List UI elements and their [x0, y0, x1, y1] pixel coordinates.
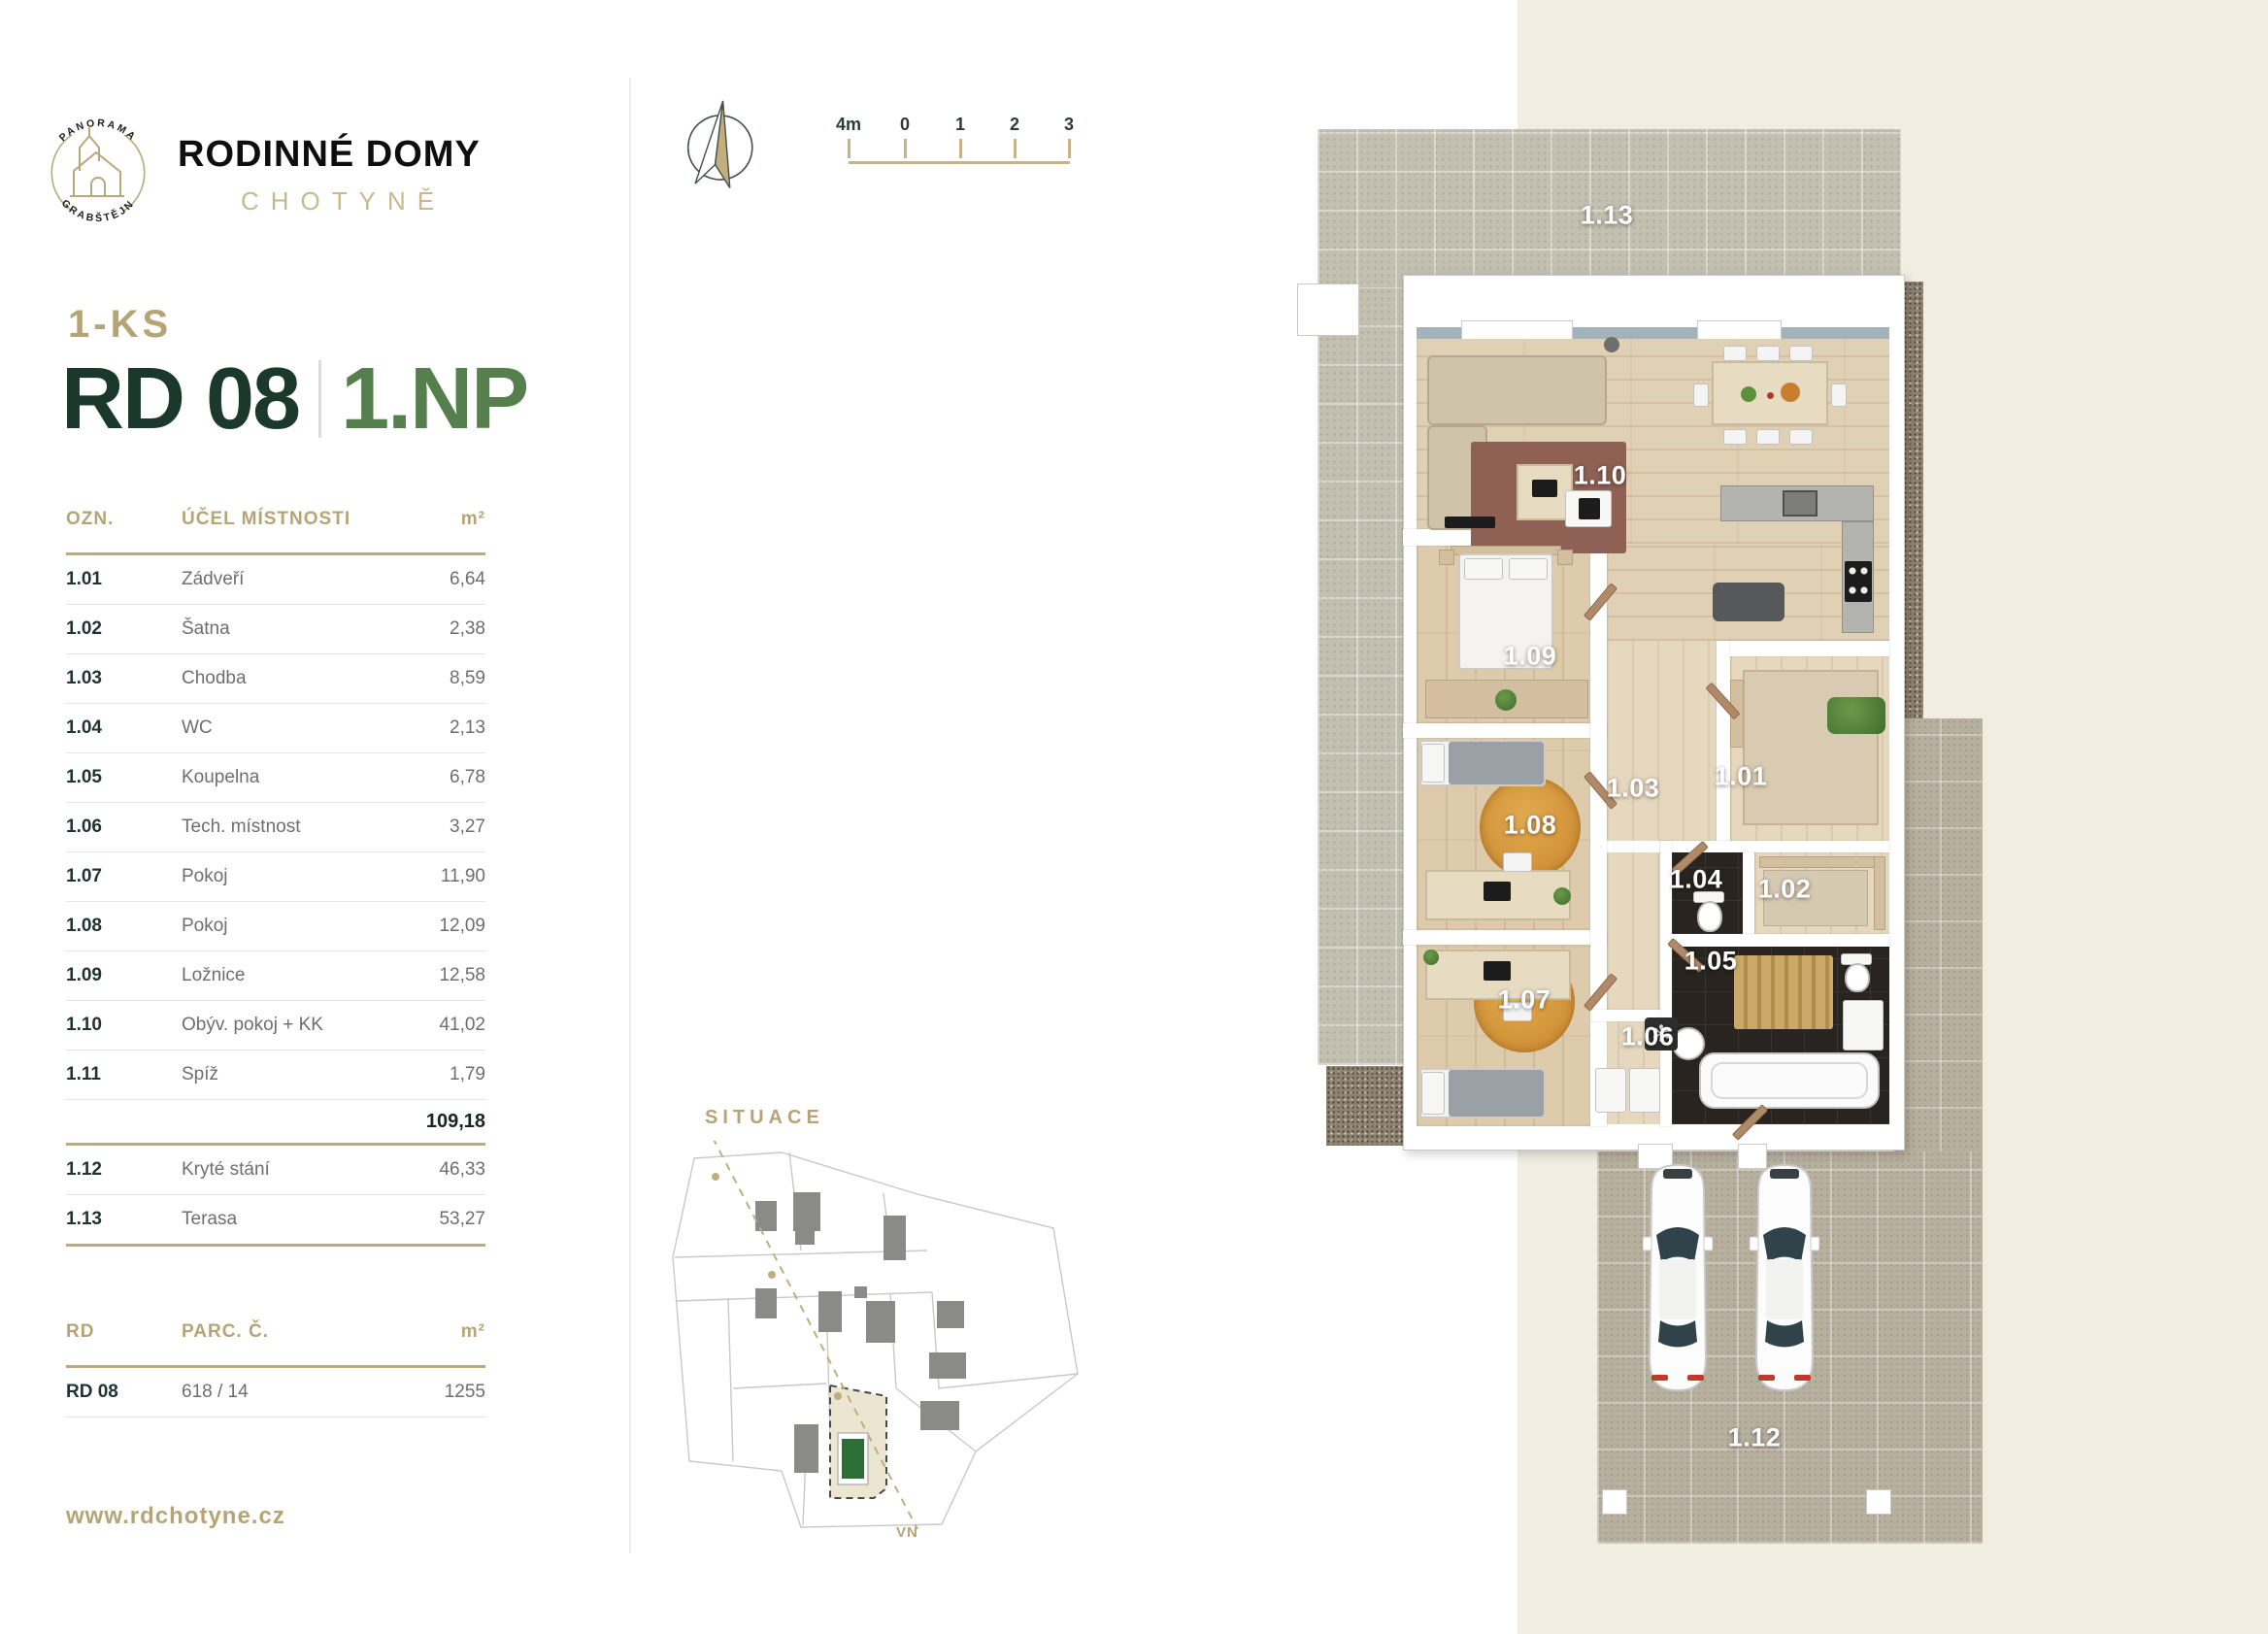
table-row: 1.09Ložnice12,58	[66, 950, 485, 1000]
table-row: 1.12Kryté stání46,33	[66, 1146, 485, 1194]
header-area: m²	[398, 509, 485, 530]
highlighted-house	[842, 1439, 864, 1479]
divider-gold	[66, 1244, 485, 1247]
scale-tick: 2	[995, 115, 1034, 158]
dining-chair	[1756, 429, 1780, 445]
table-total-row: 109,18	[66, 1099, 485, 1143]
nightstand	[1557, 550, 1573, 565]
table-row: 1.10Obýv. pokoj + KK41,02	[66, 1000, 485, 1050]
table-row: 1.02Šatna2,38	[66, 604, 485, 653]
wardrobe-unit	[1874, 856, 1885, 930]
pillow	[1509, 558, 1548, 580]
rooms-table-body: 1.01Zádveří6,64 1.02Šatna2,38 1.03Chodba…	[66, 555, 485, 1099]
table-row: 1.07Pokoj11,90	[66, 851, 485, 901]
scale-tick: 3	[1050, 115, 1088, 158]
situace-title: SITUACE	[705, 1107, 824, 1129]
table-row: 1.06Tech. místnost3,27	[66, 802, 485, 851]
table-row: RD 08618 / 141255	[66, 1368, 485, 1417]
website-link[interactable]: www.rdchotyne.cz	[66, 1503, 285, 1530]
wall	[1403, 723, 1607, 738]
room-label: 1.02	[1758, 875, 1812, 905]
entry-rug	[1743, 670, 1879, 825]
tomato	[1767, 392, 1774, 399]
wall	[1672, 934, 1889, 947]
stove	[1845, 561, 1872, 602]
rooms-table-header: OZN. ÚČEL MÍSTNOSTI m²	[66, 500, 485, 539]
unit-floor-label: 1.NP	[341, 355, 527, 443]
kitchen-sink	[1783, 490, 1818, 517]
toilet-bowl	[1845, 963, 1870, 992]
header-purpose: ÚČEL MÍSTNOSTI	[182, 509, 398, 530]
site-map: VN	[636, 1141, 1112, 1597]
compass-icon	[684, 97, 757, 194]
salad-bowl	[1741, 386, 1756, 402]
scale-tick: 1	[941, 115, 980, 158]
washing-machine	[1595, 1068, 1626, 1113]
table-row: 1.04WC2,13	[66, 703, 485, 752]
table-row: 1.08Pokoj12,09	[66, 901, 485, 950]
bathtub	[1699, 1052, 1880, 1109]
room-hall-upper	[1607, 641, 1717, 841]
table-row: 1.13Terasa53,27	[66, 1194, 485, 1244]
room-label: 1.05	[1684, 947, 1738, 977]
wall	[1743, 852, 1754, 934]
car	[1643, 1161, 1713, 1396]
dryer	[1629, 1068, 1660, 1113]
scale-ticks: 0 1 2 3 4m	[849, 115, 1070, 165]
parcel-table: RD PARC. Č. m² RD 08618 / 141255	[66, 1313, 485, 1417]
scale-tick: 0	[885, 115, 924, 158]
table-row: 1.05Koupelna6,78	[66, 752, 485, 802]
kitchen-island	[1713, 583, 1784, 621]
unit-divider	[318, 360, 321, 438]
room-label: 1.01	[1715, 762, 1768, 792]
sofa	[1427, 355, 1607, 425]
wall	[1717, 641, 1730, 841]
laptop	[1484, 882, 1511, 901]
rooms-table: OZN. ÚČEL MÍSTNOSTI m² 1.01Zádveří6,64 1…	[66, 500, 485, 1247]
room-label: 1.09	[1504, 642, 1557, 672]
carport-post	[1866, 1489, 1891, 1515]
plant	[1553, 887, 1571, 905]
floorplan-sheet: ✻ 1.131.101.091.031.011.081.041.021.051.…	[0, 0, 2268, 1634]
dining-chair	[1789, 429, 1813, 445]
vn-line-label: VN	[896, 1524, 918, 1541]
pendant-lamp	[1604, 337, 1619, 352]
header-ozn: OZN.	[66, 509, 182, 530]
table-row: 1.03Chodba8,59	[66, 653, 485, 703]
header-area: m²	[398, 1321, 485, 1343]
rooms-table-outdoor: 1.12Kryté stání46,33 1.13Terasa53,27	[66, 1146, 485, 1244]
parcel-table-body: RD 08618 / 141255	[66, 1368, 485, 1417]
brand-badge: PANORAMA GRABŠTĚJN	[35, 97, 161, 248]
toilet-bowl	[1697, 901, 1722, 932]
room-label: 1.04	[1670, 865, 1723, 895]
table-row: 1.01Zádveří6,64	[66, 555, 485, 604]
laptop	[1532, 480, 1557, 497]
bath-mat	[1734, 955, 1833, 1029]
room-label: 1.07	[1498, 985, 1551, 1016]
church-icon	[70, 126, 124, 196]
blanket	[1449, 742, 1544, 784]
room-label: 1.06	[1621, 1022, 1675, 1052]
dining-chair	[1789, 346, 1813, 361]
header-parc: PARC. Č.	[182, 1321, 398, 1343]
panel-divider	[629, 78, 631, 1553]
desk-chair	[1503, 852, 1532, 872]
room-hall-lower	[1607, 852, 1660, 1010]
room-label: 1.10	[1574, 461, 1627, 491]
wall	[1730, 641, 1889, 656]
dining-chair	[1723, 429, 1747, 445]
divider-thin	[66, 1417, 485, 1417]
pillow	[1421, 744, 1445, 783]
dining-chair	[1831, 383, 1847, 407]
nightstand	[1439, 550, 1454, 565]
terrace-side-area	[1317, 288, 1410, 1065]
wall	[1590, 544, 1607, 1126]
unit-type-label: 1-KS	[68, 303, 172, 347]
table-row: 1.11Spíž1,79	[66, 1050, 485, 1099]
room-label: 1.13	[1581, 201, 1634, 231]
room-label: 1.03	[1607, 774, 1660, 804]
wall	[1403, 930, 1607, 945]
walkway	[1893, 718, 1983, 1155]
chimney-block	[1297, 283, 1359, 336]
badge-bottom-text: GRABŠTĚJN	[59, 197, 138, 224]
carport-post	[1602, 1489, 1627, 1515]
svg-text:GRABŠTĚJN: GRABŠTĚJN	[59, 197, 138, 224]
vanity-cabinet	[1843, 1000, 1884, 1050]
blanket	[1449, 1070, 1544, 1117]
plant	[1495, 689, 1517, 711]
room-label: 1.08	[1504, 811, 1557, 841]
wardrobe-unit	[1759, 856, 1885, 868]
dining-chair	[1693, 383, 1709, 407]
plant	[1423, 950, 1439, 965]
laptop	[1484, 961, 1511, 981]
dining-chair	[1723, 346, 1747, 361]
pillow	[1464, 558, 1503, 580]
food-plate	[1781, 383, 1800, 402]
pillow	[1421, 1072, 1445, 1115]
svg-text:PANORAMA: PANORAMA	[57, 117, 139, 144]
scale-bar: 0 1 2 3 4m	[849, 115, 1070, 165]
parcel-table-header: RD PARC. Č. m²	[66, 1313, 485, 1351]
room-label: 1.12	[1728, 1423, 1782, 1453]
unit-house-label: RD 08	[61, 355, 299, 443]
brand-subtitle: CHOTYNĚ	[241, 186, 446, 217]
header-rd: RD	[66, 1321, 182, 1343]
scale-tick: 4m	[829, 115, 868, 158]
dining-chair	[1756, 346, 1780, 361]
total-area-value: 109,18	[398, 1111, 485, 1133]
badge-top-text: PANORAMA	[57, 117, 139, 144]
unit-title: RD 08 1.NP	[61, 355, 527, 443]
fireplace-insert	[1579, 498, 1600, 519]
brand-title: RODINNÉ DOMY	[178, 134, 481, 176]
car	[1750, 1161, 1819, 1396]
hedge	[1827, 697, 1885, 734]
tv	[1445, 517, 1495, 528]
